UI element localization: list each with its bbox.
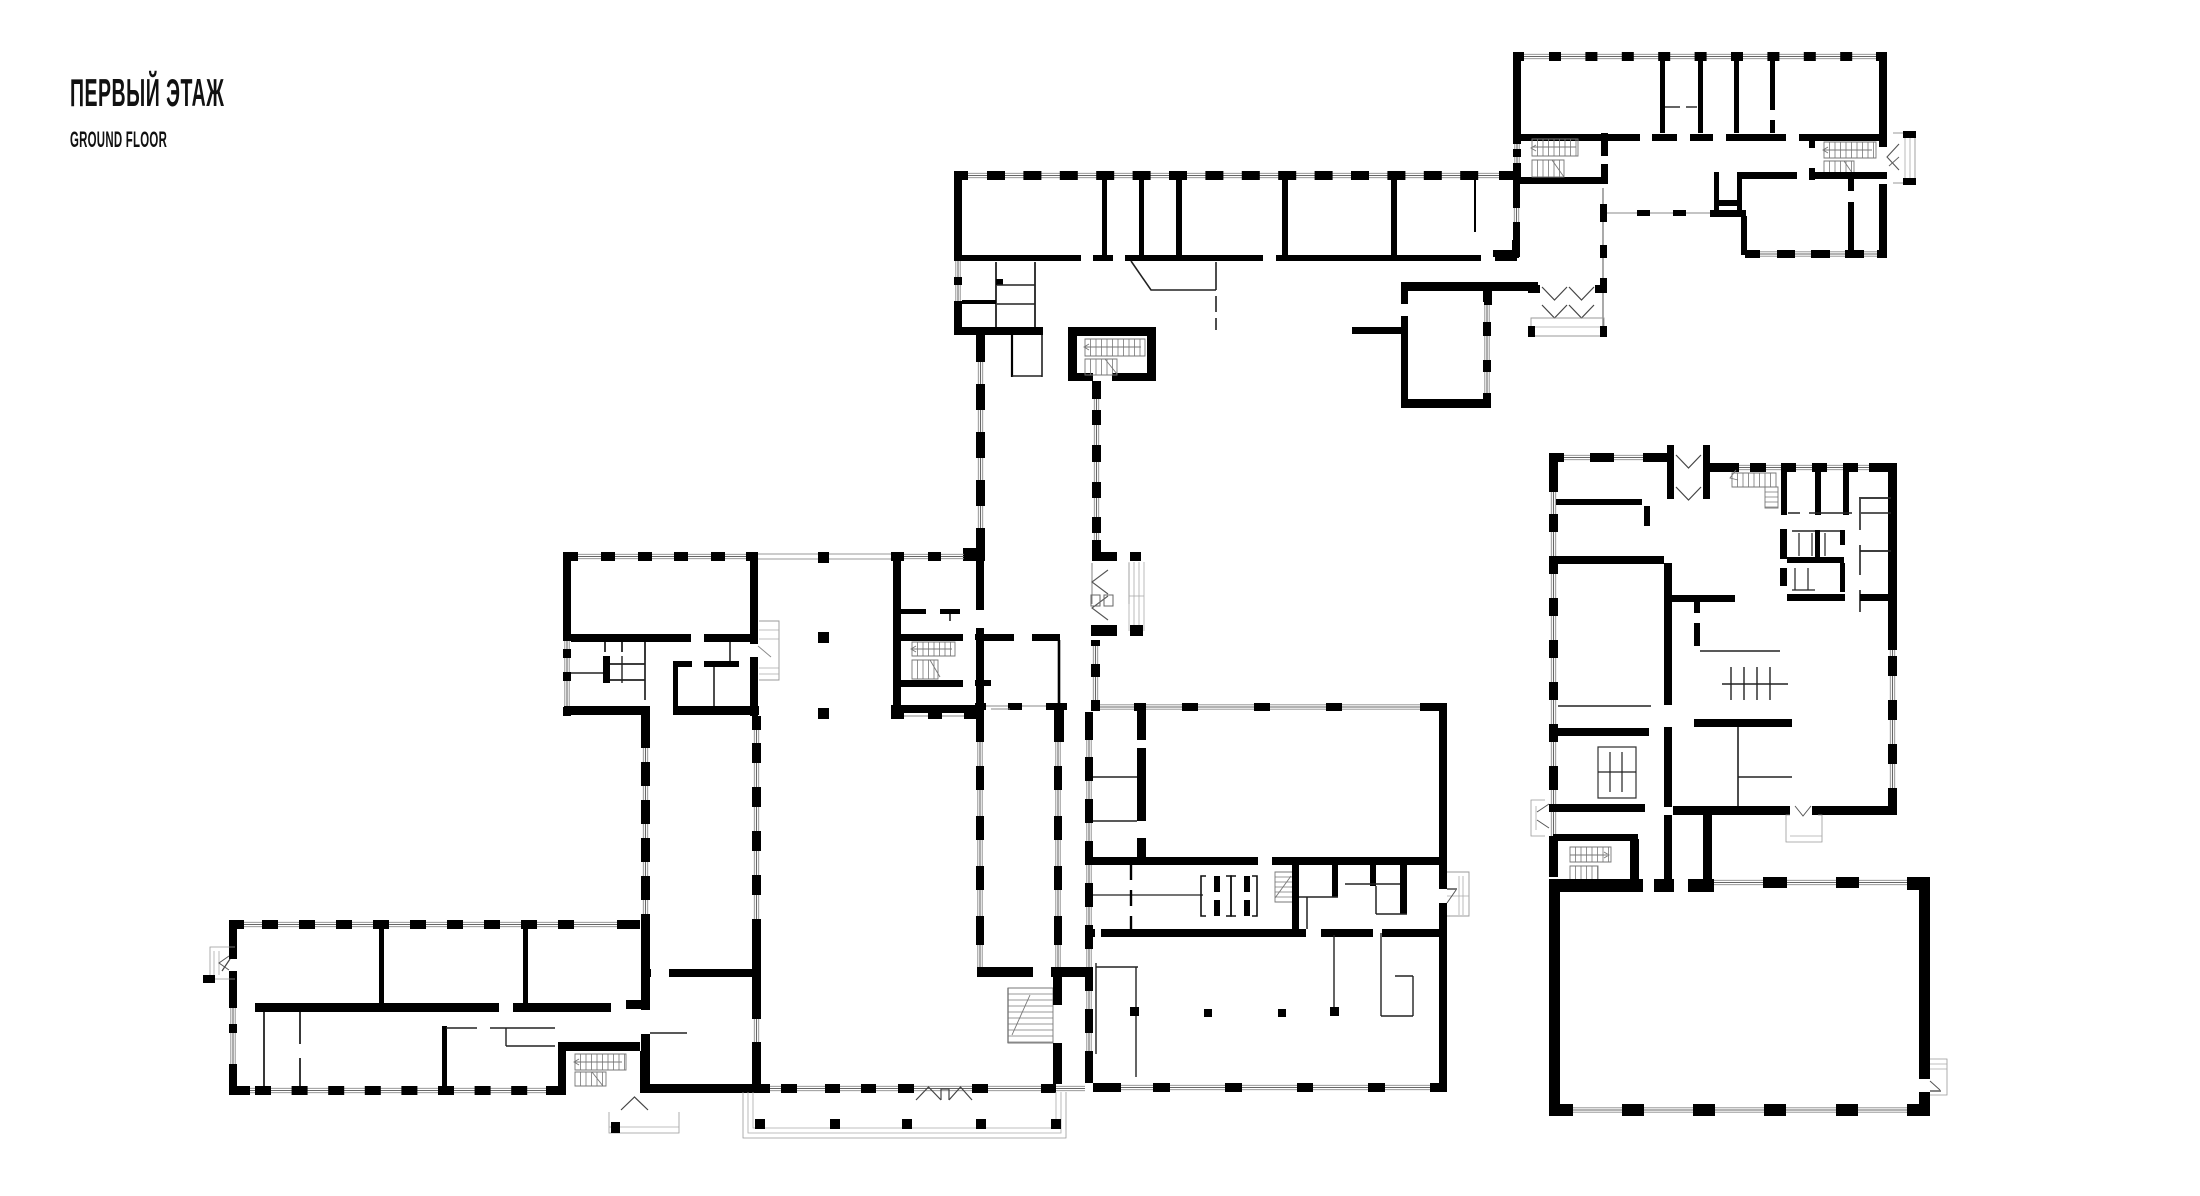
svg-text:GROUND FLOOR: GROUND FLOOR [70,127,167,152]
svg-text:ПЕРВЫЙ ЭТАЖ: ПЕРВЫЙ ЭТАЖ [70,69,225,115]
